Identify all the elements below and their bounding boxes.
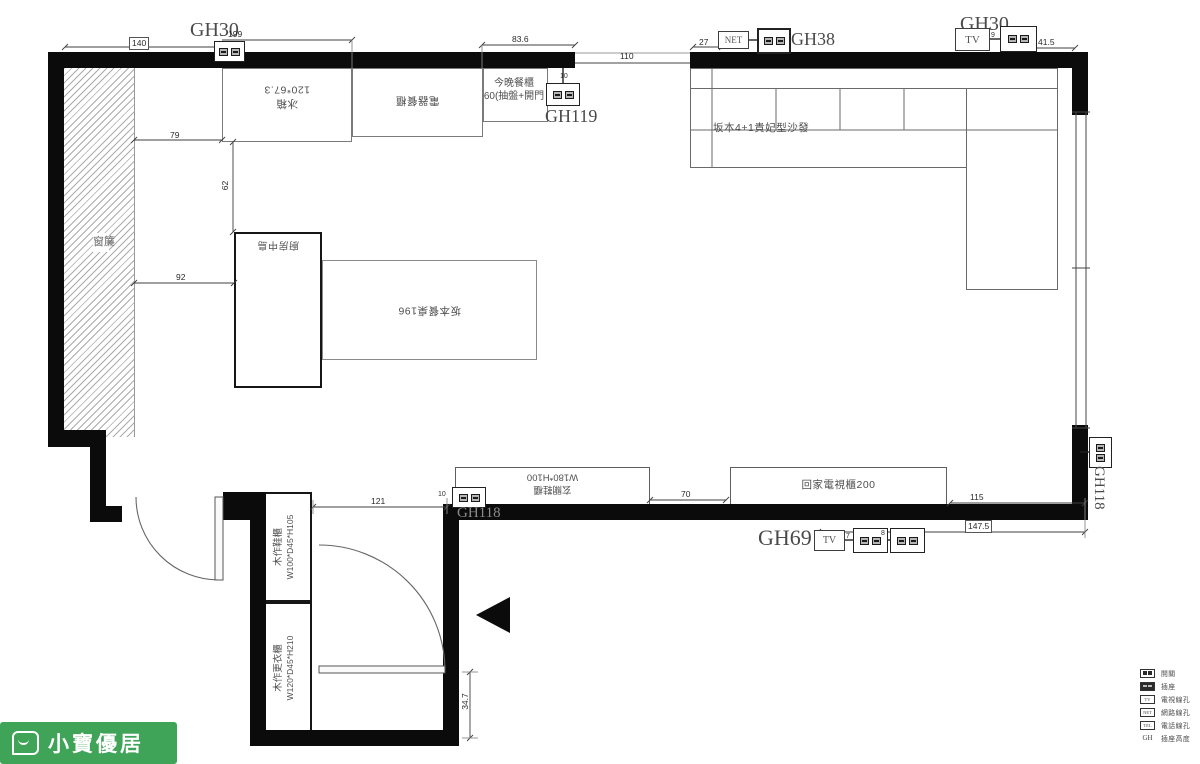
net-outlet-icon: NET xyxy=(1140,708,1155,717)
outlet-icon-gh69-b xyxy=(890,528,925,553)
dim-83-6: 83.6 xyxy=(512,34,529,45)
dim-110: 110 xyxy=(620,51,634,62)
wall-right-upper xyxy=(1072,52,1088,115)
tv-outlet-icon: TV xyxy=(1140,695,1155,704)
dim-79: 79 xyxy=(170,130,179,141)
tv-cabinet-label: 回家電視櫃200 xyxy=(730,479,947,493)
sofa-chaise xyxy=(966,88,1058,290)
sofa-label: 坂本4+1貴妃型沙發 xyxy=(713,122,809,136)
chat-bubble-icon xyxy=(12,731,39,755)
legend-row-tv: TV 電視線孔 xyxy=(1140,694,1190,704)
wardrobe-label: 木作更衣櫃W120*D45*H210 xyxy=(273,613,303,723)
shoe-cabinet-label: 木作鞋櫃W100*D45*H105 xyxy=(273,492,303,602)
fridge-label: 冰箱120*67.3 xyxy=(222,82,352,109)
dim-140: 140 xyxy=(129,37,149,50)
gh-code-icon: GH xyxy=(1140,734,1155,743)
legend-row-switch: 開關 xyxy=(1140,668,1176,678)
gh69-label: GH69 xyxy=(758,524,812,553)
dim-199: 199 xyxy=(228,29,242,40)
curtain-label: 窗簾 xyxy=(93,233,109,252)
outlet-icon-gh30-left xyxy=(214,41,245,62)
dim-41-5: 41.5 xyxy=(1038,37,1055,48)
outlet-icon xyxy=(1140,682,1155,691)
wall-bottom-main xyxy=(443,504,1088,520)
net-box: NET xyxy=(718,31,749,49)
floor-plan: 窗簾 冰箱120*67.3 電器餐櫃 今晚餐櫃60(抽盤+開門 廚房中島 坂本餐… xyxy=(0,0,1200,764)
outlet-icon-gh119 xyxy=(546,83,580,106)
height-note-9: 9 xyxy=(991,31,995,40)
dim-92: 92 xyxy=(176,272,185,283)
outlet-icon-gh30-right xyxy=(1000,26,1037,52)
dim-115: 115 xyxy=(970,492,984,503)
gh118-wall-label: GH118 xyxy=(457,504,501,524)
height-note-8: 8 xyxy=(881,529,885,538)
dim-147-5: 147.5 xyxy=(965,520,992,533)
dim-70: 70 xyxy=(681,489,690,500)
dim-27: 27 xyxy=(699,37,708,48)
tv-box-bottom: TV xyxy=(814,530,845,551)
height-note-10a: 10 xyxy=(560,72,568,81)
outlet-icon-gh38 xyxy=(757,28,791,54)
legend-row-net: NET 網路線孔 xyxy=(1140,707,1190,717)
wall-bottom-left-stub xyxy=(90,506,122,522)
wall-left xyxy=(48,52,64,447)
tv-box-top: TV xyxy=(955,28,990,51)
wall-corridor-bottom xyxy=(250,730,459,746)
brand-logo-text: 小寶優居 xyxy=(48,728,144,758)
height-note-7: 7 xyxy=(846,532,850,541)
dim-121: 121 xyxy=(371,496,385,507)
legend-row-outlet: 插座 xyxy=(1140,681,1176,691)
wall-corridor-left xyxy=(250,492,266,746)
legend-row-gh: GH 插座高度 xyxy=(1140,733,1190,743)
switch-icon xyxy=(1140,669,1155,678)
gh118-right-label: GH118 xyxy=(1089,466,1109,510)
gh119-label: GH119 xyxy=(545,105,597,128)
sofa-back xyxy=(690,68,1058,90)
outlet-icon-gh118-right xyxy=(1089,437,1112,468)
kitchen-island xyxy=(234,232,322,388)
dining-table-label: 坂本餐桌196 xyxy=(322,303,537,317)
wall-corridor-right xyxy=(443,504,459,746)
legend-row-tel: TEL 電話線孔 xyxy=(1140,720,1190,730)
dim-62: 62 xyxy=(220,181,231,190)
curtain-zone-hatch xyxy=(64,68,135,437)
wall-top-left xyxy=(48,52,575,68)
kitchen-island-label: 廚房中島 xyxy=(234,238,322,251)
height-note-10b: 10 xyxy=(438,490,446,499)
tel-outlet-icon: TEL xyxy=(1140,721,1155,730)
dim-34-7: 34.7 xyxy=(460,693,471,710)
gh38-label: GH38 xyxy=(791,28,835,51)
wall-top-right xyxy=(690,52,1088,68)
brand-logo: 小寶優居 xyxy=(0,722,177,764)
wall-left-cap xyxy=(48,430,106,447)
